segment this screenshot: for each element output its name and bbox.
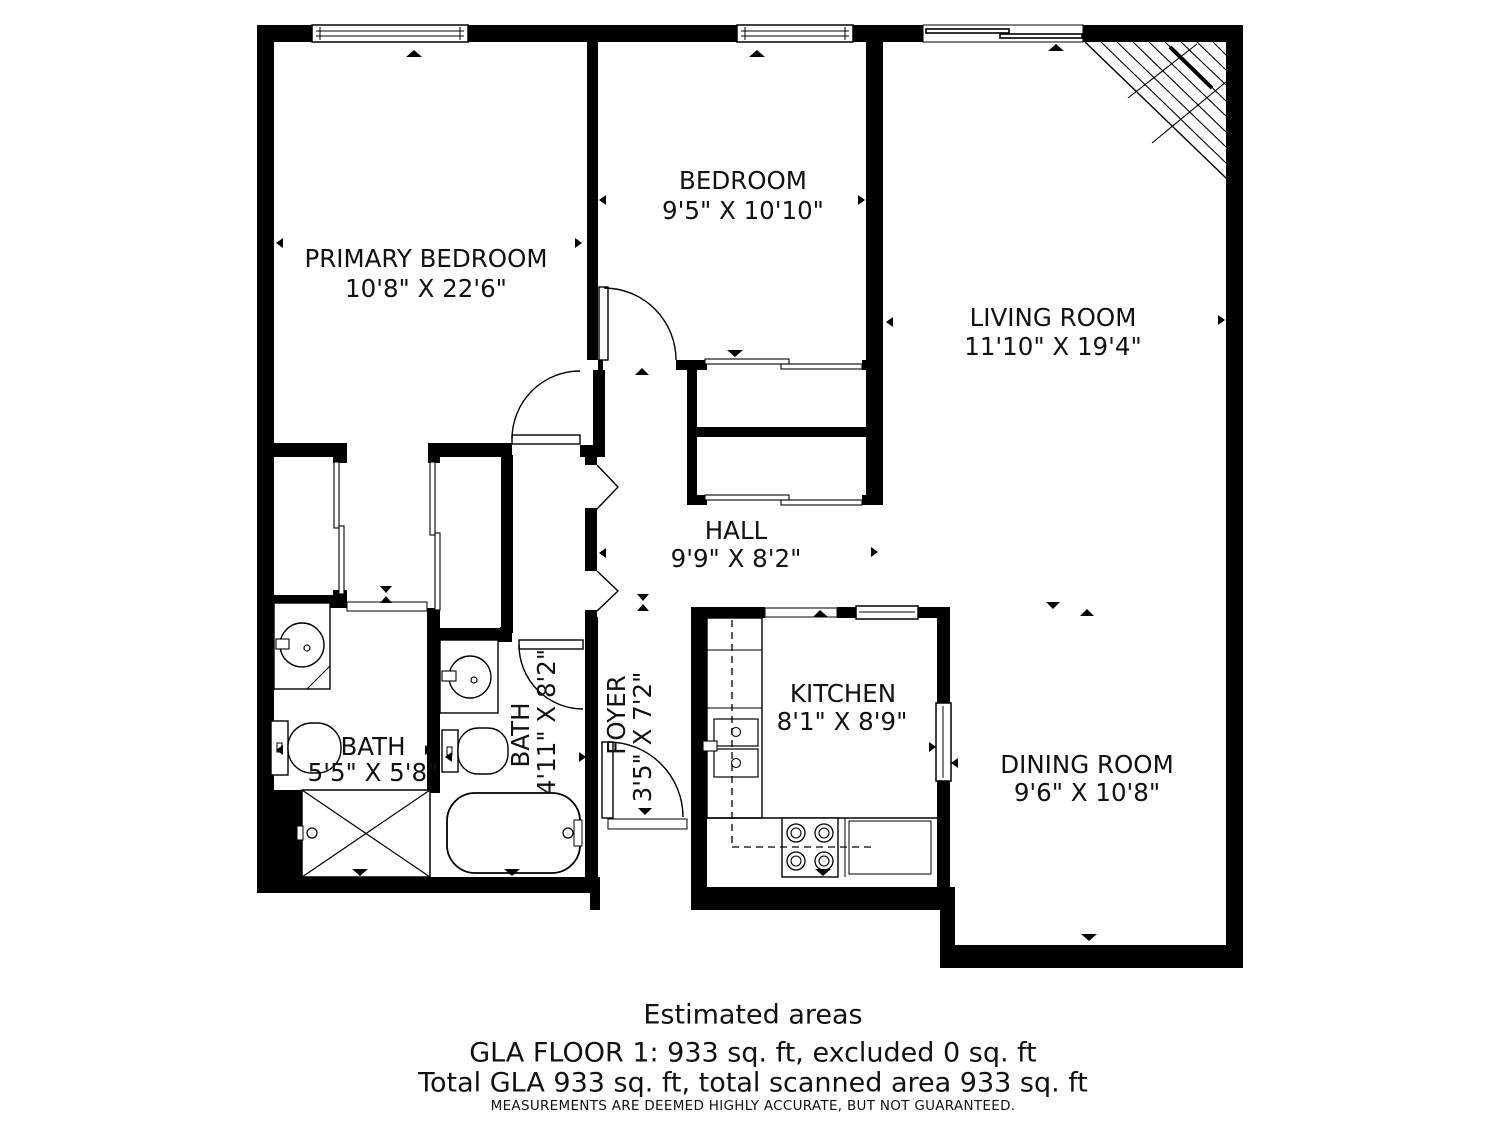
room-dims-hall: 9'9" X 8'2": [671, 547, 802, 572]
bath1-vanity-sink: [274, 603, 330, 689]
bathtub: [447, 793, 582, 873]
room-label-bedroom: BEDROOM: [679, 169, 807, 194]
window-bedroom: [737, 25, 853, 42]
bifold-doors: [597, 465, 618, 611]
room-dims-living-room: 11'10" X 19'4": [964, 335, 1141, 360]
room-label-kitchen: KITCHEN: [790, 682, 896, 707]
room-dims-kitchen: 8'1" X 8'9": [777, 710, 908, 735]
room-label-living-room: LIVING ROOM: [970, 306, 1137, 331]
footer-total-line: Total GLA 933 sq. ft, total scanned area…: [418, 1068, 1088, 1099]
sliding-door-living-room: [923, 25, 1083, 42]
room-dims-dining-room: 9'6" X 10'8": [1014, 781, 1160, 806]
door-primary-bedroom: [512, 371, 580, 444]
room-dims-primary-bedroom: 10'8" X 22'6": [345, 277, 507, 302]
room-dims-bath-2: 4'11" X 8'2": [535, 649, 560, 795]
window-primary-bedroom: [312, 25, 468, 42]
shower: [297, 790, 430, 877]
room-label-dining-room: DINING ROOM: [1000, 753, 1173, 778]
footer-gla-line: GLA FLOOR 1: 933 sq. ft, excluded 0 sq. …: [469, 1038, 1037, 1069]
door-bedroom: [599, 287, 676, 360]
room-label-primary-bedroom: PRIMARY BEDROOM: [304, 247, 547, 272]
bath2-vanity-sink: [440, 640, 498, 713]
pass-through-window-hall: [856, 606, 918, 619]
floorplan-page: PRIMARY BEDROOM 10'8" X 22'6" BEDROOM 9'…: [0, 0, 1500, 1125]
footer-title: Estimated areas: [643, 1000, 862, 1031]
room-dims-bath-1: 5'5" X 5'8": [308, 761, 439, 786]
footer-disclaimer: MEASUREMENTS ARE DEEMED HIGHLY ACCURATE,…: [491, 1098, 1016, 1114]
room-label-foyer: FOYER: [605, 675, 630, 755]
room-label-bath-1: BATH: [340, 735, 405, 760]
room-dims-foyer: 3'5" X 7'2": [631, 672, 656, 803]
room-label-bath-2: BATH: [509, 702, 534, 767]
corner-hatch: [1085, 42, 1226, 178]
room-label-hall: HALL: [705, 519, 767, 544]
room-dims-bedroom: 9'5" X 10'10": [662, 199, 824, 224]
pass-through-window-dining: [936, 703, 951, 781]
bath2-toilet: [442, 728, 508, 774]
